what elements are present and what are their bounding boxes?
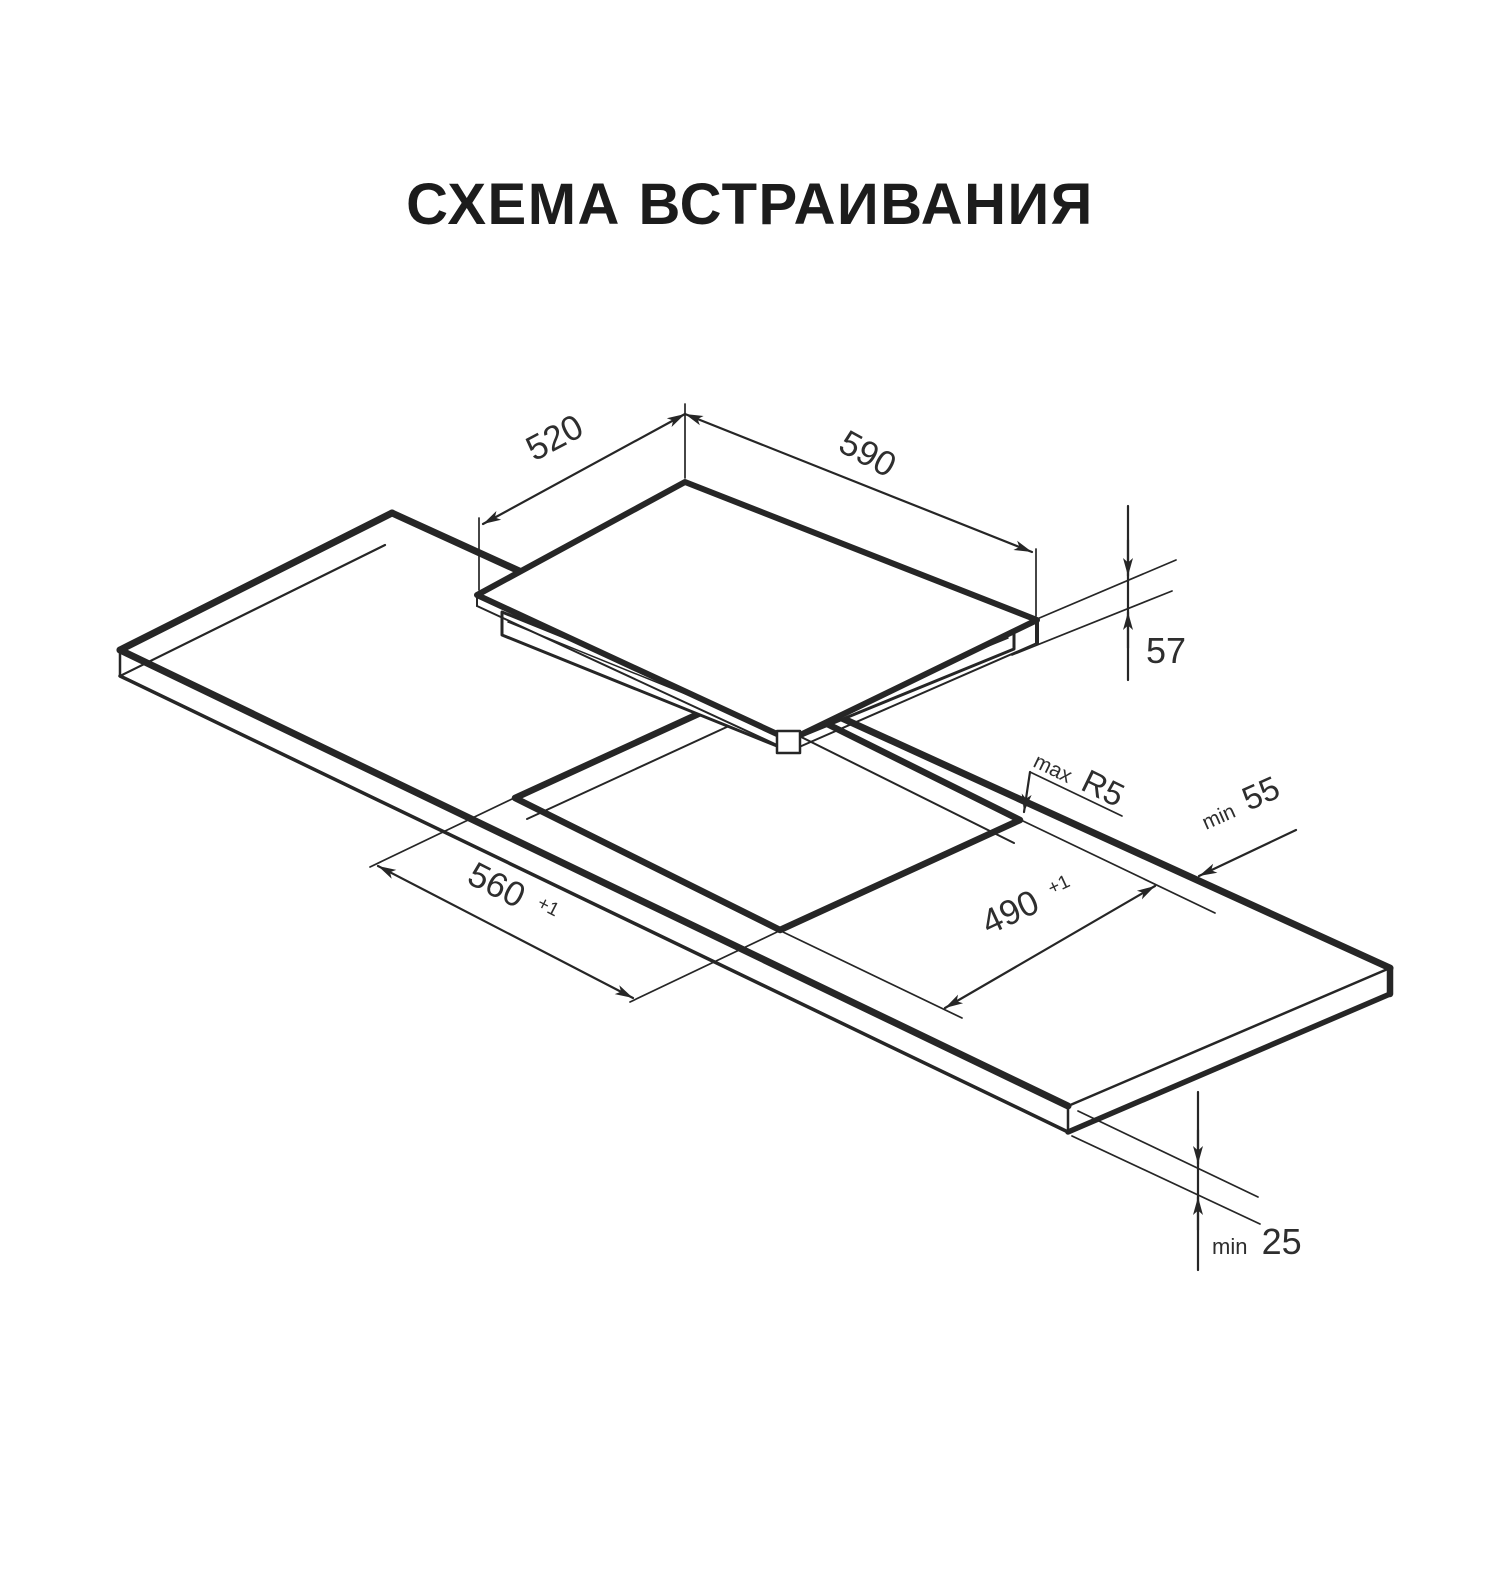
dim-label-min-55: min 55	[1194, 769, 1285, 837]
dim-label-max-r5: max R5	[1029, 739, 1130, 814]
dim-label-560-tolerance: +1	[534, 893, 563, 922]
dim-label-min-25-value: 25	[1262, 1221, 1302, 1262]
installation-diagram: 520 590 57 max R5 min 55 560 +1 490 +1 m…	[0, 0, 1500, 1586]
dim-label-min-55-prefix: min	[1199, 800, 1239, 835]
dim-label-max-r5-value: R5	[1076, 762, 1130, 814]
ext-min25-bottom	[1072, 1136, 1260, 1224]
dim-label-520: 520	[520, 407, 590, 469]
ext-min25-top	[1078, 1111, 1258, 1197]
dim-label-min-55-value: 55	[1236, 769, 1285, 818]
dim-label-560-value: 560	[462, 855, 532, 916]
hob-foot	[777, 731, 800, 753]
dim-label-min-25-prefix: min	[1212, 1234, 1247, 1259]
dim-label-57: 57	[1146, 630, 1186, 671]
ext-560-left	[370, 799, 512, 867]
dim-label-min-25: min 25	[1212, 1221, 1302, 1262]
ext-560-right	[630, 932, 777, 1002]
dim-line-min55	[1199, 830, 1296, 876]
ext-57-top	[1037, 560, 1176, 619]
